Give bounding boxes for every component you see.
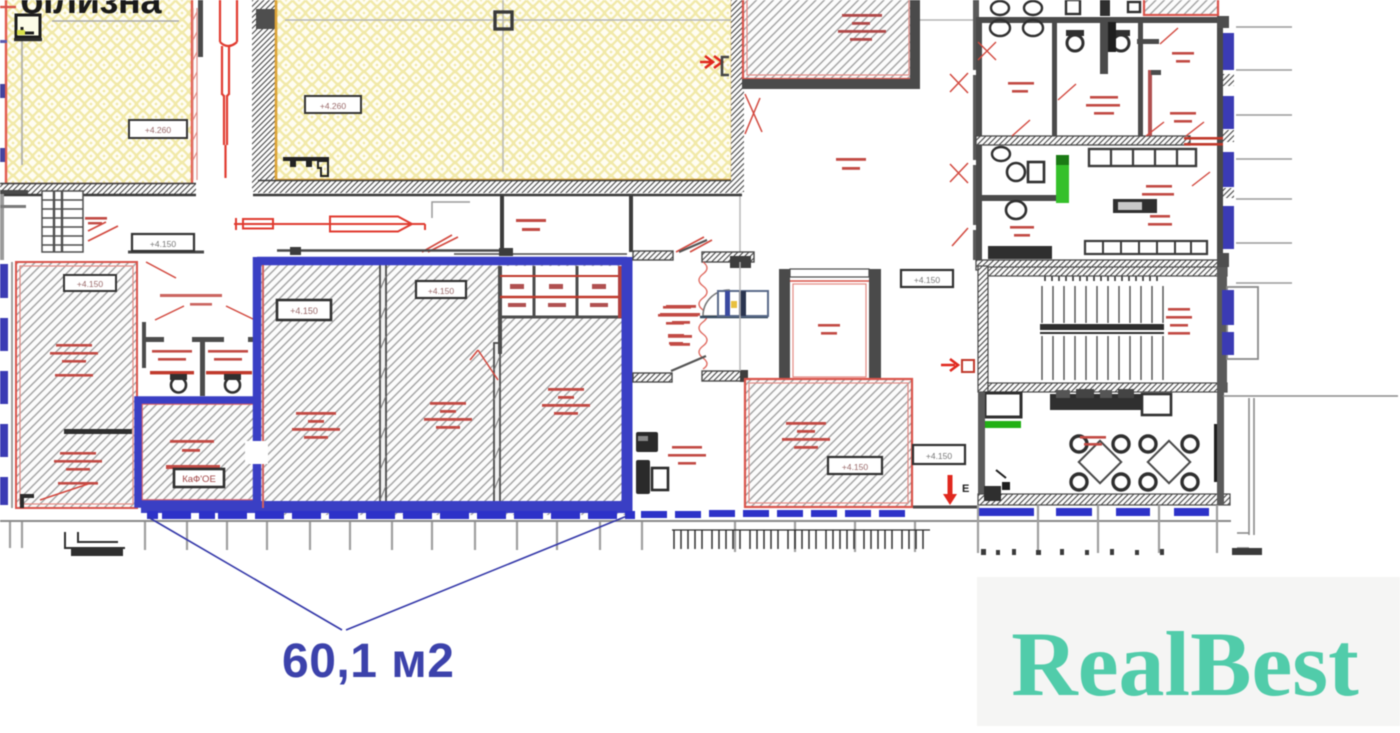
svg-text:КаФ'ОЕ: КаФ'ОЕ	[182, 474, 216, 485]
svg-text:+4.150: +4.150	[77, 279, 104, 289]
svg-text:+4.150: +4.150	[926, 451, 953, 461]
svg-text:60,1 м2: 60,1 м2	[282, 635, 454, 688]
svg-text:+4.150: +4.150	[428, 286, 455, 296]
svg-text:RealBest: RealBest	[1011, 613, 1359, 715]
svg-text:+4.150: +4.150	[290, 306, 318, 316]
svg-text:+4.260: +4.260	[145, 125, 172, 135]
svg-text:+4.150: +4.150	[842, 462, 869, 472]
svg-text:Е: Е	[962, 483, 969, 495]
svg-text:+4.150: +4.150	[150, 239, 177, 249]
svg-text:+4.150: +4.150	[914, 275, 941, 285]
svg-text:+4.260: +4.260	[320, 101, 347, 111]
